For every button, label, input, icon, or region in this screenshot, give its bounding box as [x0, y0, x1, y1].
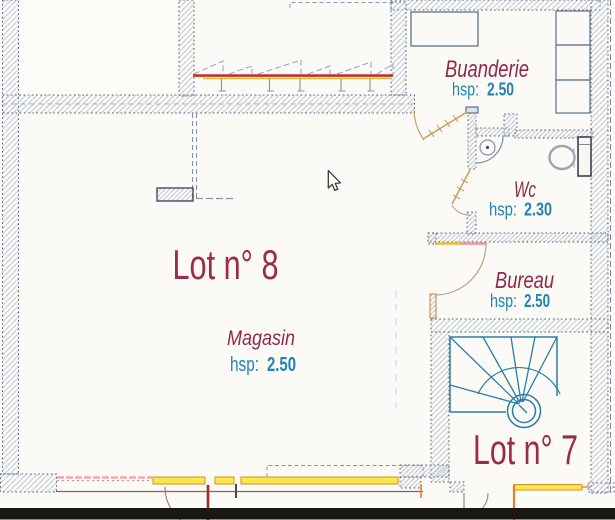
svg-text:2.50: 2.50 — [524, 290, 550, 311]
svg-text:2.50: 2.50 — [487, 79, 514, 100]
svg-text:Lot n° 7: Lot n° 7 — [473, 426, 578, 473]
svg-text:hsp:: hsp: — [490, 290, 517, 311]
svg-text:Lot n° 8: Lot n° 8 — [173, 241, 279, 288]
svg-text:hsp:: hsp: — [230, 354, 259, 376]
svg-text:hsp:: hsp: — [452, 79, 479, 100]
svg-text:2.50: 2.50 — [267, 354, 296, 376]
svg-text:Magasin: Magasin — [227, 327, 295, 350]
svg-text:hsp:: hsp: — [489, 199, 517, 220]
svg-text:2.30: 2.30 — [524, 199, 552, 220]
